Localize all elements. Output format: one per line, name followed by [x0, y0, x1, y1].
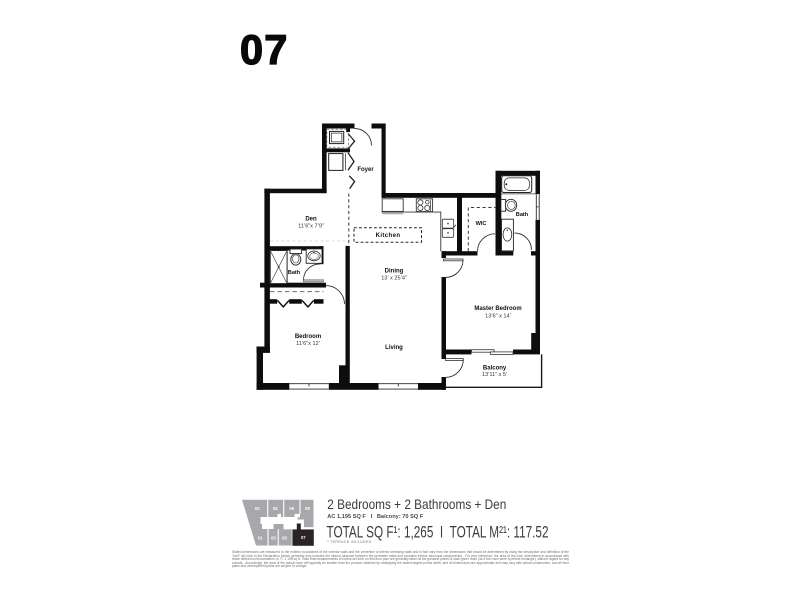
svg-text:11’6”x 7’9”: 11’6”x 7’9”: [298, 224, 324, 230]
svg-text:Master Bedroom: Master Bedroom: [474, 306, 521, 312]
svg-text:TOTAL SQ F¹: 1,265 I TOTAL M: TOTAL SQ F¹: 1,265 I TOTAL M²¹: 117.52: [327, 523, 549, 541]
svg-text:07: 07: [240, 26, 289, 73]
svg-text:02: 02: [255, 506, 260, 511]
svg-text:01: 01: [258, 535, 263, 540]
svg-text:11’6”x 12’: 11’6”x 12’: [296, 341, 320, 347]
svg-text:03: 03: [271, 535, 276, 540]
svg-text:Bath: Bath: [516, 212, 529, 218]
svg-text:13’ x 25’4”: 13’ x 25’4”: [381, 276, 407, 282]
svg-text:05: 05: [282, 535, 287, 540]
svg-text:06: 06: [289, 506, 294, 511]
svg-text:Kitchen: Kitchen: [376, 233, 401, 239]
svg-text:Bath: Bath: [288, 270, 301, 276]
svg-text:Foyer: Foyer: [357, 167, 374, 173]
svg-text:13’11” x 5’: 13’11” x 5’: [482, 372, 507, 378]
svg-text:04: 04: [273, 506, 278, 511]
svg-text:Living: Living: [385, 345, 403, 351]
svg-text:Dining: Dining: [385, 269, 404, 275]
svg-text:¹ TERRACE INCLUDED: ¹ TERRACE INCLUDED: [327, 540, 371, 544]
svg-text:Den: Den: [305, 217, 317, 223]
svg-text:08: 08: [305, 506, 310, 511]
svg-text:Balcony: Balcony: [483, 365, 507, 371]
svg-text:Bedroom: Bedroom: [295, 334, 321, 340]
svg-text:WIC: WIC: [476, 221, 487, 227]
svg-text:2 Bedrooms + 2 Bathrooms + Den: 2 Bedrooms + 2 Bathrooms + Den: [327, 496, 506, 512]
svg-text:13’6” x 14’: 13’6” x 14’: [485, 313, 511, 319]
svg-text:07: 07: [301, 535, 306, 540]
svg-text:AC 1,195 SQ F I Balcony: 7: AC 1,195 SQ F I Balcony: 70 SQ F: [327, 514, 423, 520]
